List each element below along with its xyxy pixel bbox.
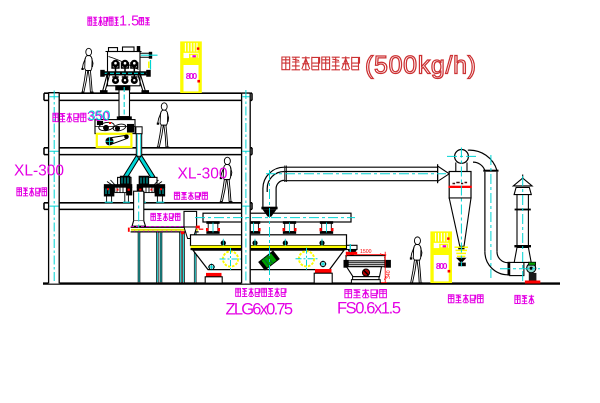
svg-text:1500: 1500 bbox=[360, 249, 372, 255]
svg-text:(500kg/h): (500kg/h) bbox=[365, 52, 476, 80]
svg-text:ZLG6x0.75: ZLG6x0.75 bbox=[226, 301, 294, 319]
svg-text:350: 350 bbox=[88, 108, 111, 123]
svg-text:1.5: 1.5 bbox=[119, 14, 139, 30]
svg-text:800: 800 bbox=[186, 71, 198, 81]
svg-text:FS0.6x1.5: FS0.6x1.5 bbox=[337, 300, 401, 318]
svg-text:800: 800 bbox=[436, 261, 448, 271]
svg-text:340: 340 bbox=[386, 270, 392, 279]
svg-text:XL-300: XL-300 bbox=[178, 166, 228, 183]
svg-text:XL-300: XL-300 bbox=[14, 163, 64, 180]
